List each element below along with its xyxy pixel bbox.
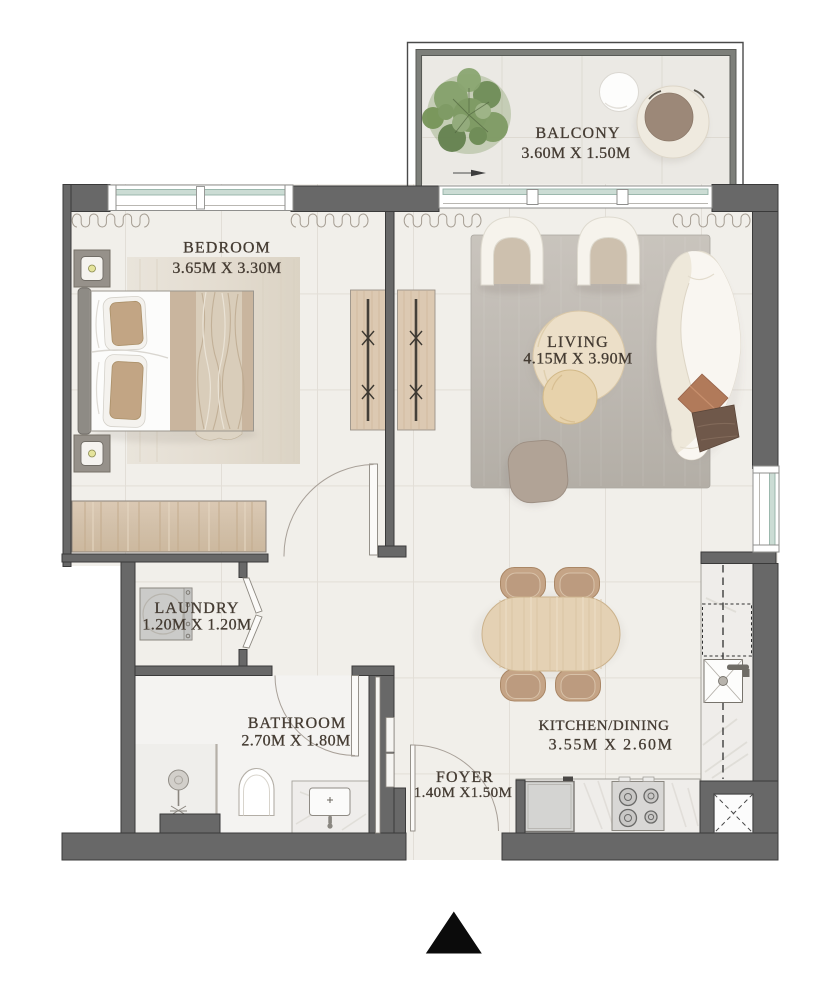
svg-text:1.40M X1.50M: 1.40M X1.50M — [414, 785, 513, 801]
svg-text:LAUNDRY: LAUNDRY — [154, 600, 239, 617]
svg-text:BALCONY: BALCONY — [535, 125, 620, 142]
svg-text:3.65M X 3.30M: 3.65M X 3.30M — [172, 260, 281, 277]
svg-text:4.15M X 3.90M: 4.15M X 3.90M — [523, 351, 632, 368]
svg-text:2.70M X 1.80M: 2.70M X 1.80M — [241, 733, 350, 750]
svg-text:BEDROOM: BEDROOM — [183, 240, 271, 257]
svg-text:BATHROOM: BATHROOM — [248, 715, 347, 732]
svg-text:1.20M X 1.20M: 1.20M X 1.20M — [142, 617, 251, 634]
svg-text:3.55M X 2.60M: 3.55M X 2.60M — [549, 737, 674, 754]
svg-text:FOYER: FOYER — [436, 769, 494, 786]
svg-text:3.60M X 1.50M: 3.60M X 1.50M — [521, 145, 630, 162]
svg-text:LIVING: LIVING — [547, 334, 609, 351]
svg-text:KITCHEN/DINING: KITCHEN/DINING — [538, 718, 669, 734]
